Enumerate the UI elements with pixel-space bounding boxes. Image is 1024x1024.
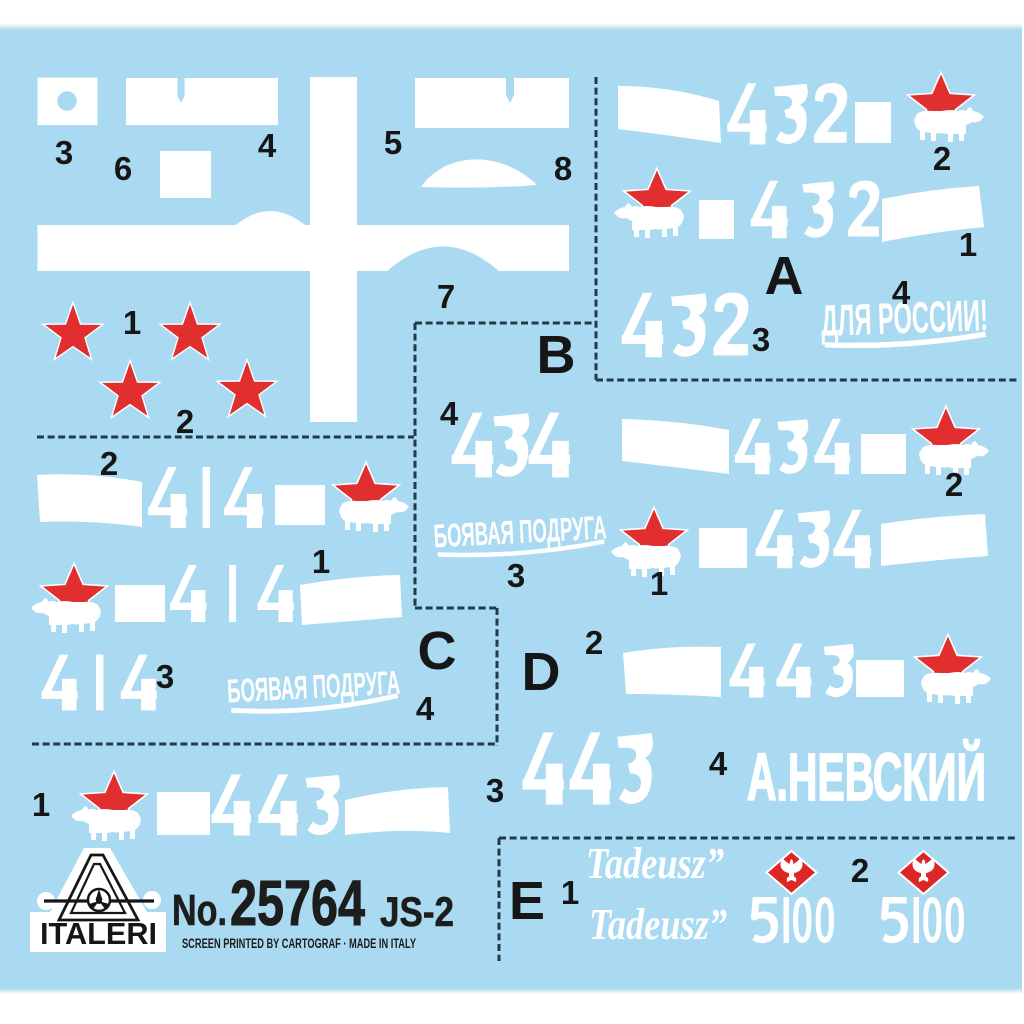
svg-text:SCREEN PRINTED BY CARTOGRAF ·: SCREEN PRINTED BY CARTOGRAF · MADE IN IT… — [182, 936, 416, 951]
svg-text:2: 2 — [945, 466, 963, 503]
svg-text:1: 1 — [32, 786, 50, 823]
svg-text:1: 1 — [650, 565, 668, 602]
svg-text:Tadeusz”: Tadeusz” — [589, 900, 727, 949]
svg-text:1: 1 — [959, 226, 977, 263]
svg-text:8: 8 — [554, 150, 572, 187]
svg-text:3: 3 — [507, 557, 525, 594]
svg-text:А.НЕВСКИЙ: А.НЕВСКИЙ — [747, 739, 986, 815]
svg-text:4: 4 — [258, 127, 277, 164]
svg-text:E: E — [509, 871, 545, 931]
svg-text:D: D — [522, 642, 561, 702]
svg-text:A: A — [765, 246, 804, 306]
svg-text:3: 3 — [752, 321, 770, 358]
svg-text:JS-2: JS-2 — [380, 888, 454, 935]
svg-text:6: 6 — [114, 150, 132, 187]
svg-text:3: 3 — [55, 134, 73, 171]
svg-text:ITALERI: ITALERI — [40, 916, 157, 951]
svg-text:1: 1 — [561, 874, 579, 911]
svg-text:4: 4 — [709, 745, 728, 782]
svg-text:C: C — [418, 621, 457, 681]
svg-text:7: 7 — [437, 278, 455, 315]
svg-text:2: 2 — [933, 140, 951, 177]
svg-text:No.: No. — [172, 886, 227, 935]
svg-text:2: 2 — [851, 852, 869, 889]
svg-text:3: 3 — [156, 658, 174, 695]
svg-text:4: 4 — [416, 690, 435, 727]
svg-text:3: 3 — [486, 772, 504, 809]
svg-text:2: 2 — [585, 624, 603, 661]
svg-text:25764: 25764 — [230, 867, 365, 939]
svg-text:5: 5 — [384, 124, 402, 161]
svg-text:1: 1 — [312, 543, 330, 580]
svg-text:1: 1 — [123, 304, 141, 341]
svg-text:4: 4 — [892, 274, 911, 311]
svg-text:2: 2 — [100, 445, 118, 482]
svg-text:4: 4 — [440, 395, 459, 432]
svg-text:2: 2 — [176, 403, 194, 440]
svg-text:B: B — [537, 325, 576, 385]
svg-text:Tadeusz”: Tadeusz” — [586, 839, 724, 888]
